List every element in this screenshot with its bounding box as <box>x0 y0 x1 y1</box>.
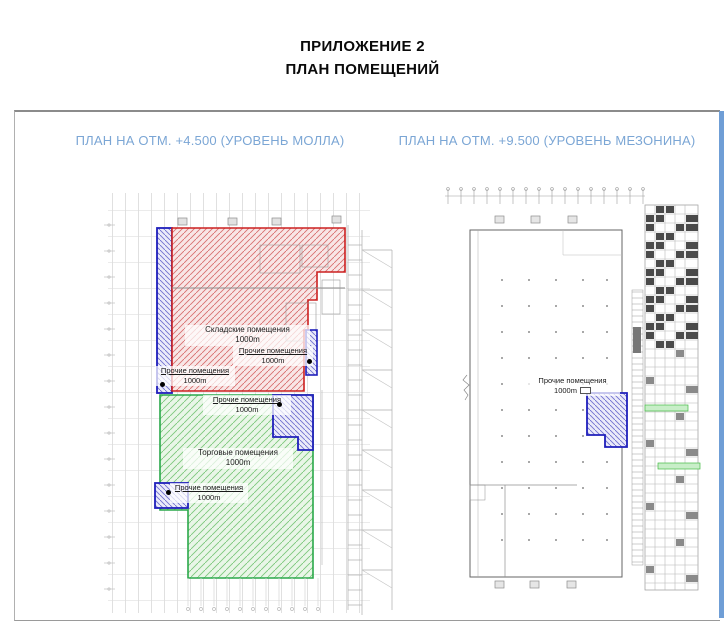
leader-dot-other-left <box>160 382 165 387</box>
legend-box-icon <box>580 387 591 394</box>
zone-label-other-left: Прочие помещения 1000m <box>155 366 235 386</box>
zone-label-mezz-other: Прочие помещения 1000m <box>525 376 620 396</box>
mezzanine-ladder-strip <box>632 290 643 565</box>
document-title-line2: ПЛАН ПОМЕЩЕНИЙ <box>0 59 725 82</box>
zone-label-retail: Торговые помещения 1000m <box>183 448 293 469</box>
mezzanine-plan-title: ПЛАН НА ОТМ. +9.500 (УРОВЕНЬ МЕЗОНИНА) <box>382 133 712 148</box>
document-title: ПРИЛОЖЕНИЕ 2 ПЛАН ПОМЕЩЕНИЙ <box>0 36 725 81</box>
mall-plan-title: ПЛАН НА ОТМ. +4.500 (УРОВЕНЬ МОЛЛА) <box>62 133 358 148</box>
zone-label-other-bottom-left: Прочие помещения 1000m <box>170 483 248 503</box>
frame-right-blue-bar <box>719 111 724 618</box>
zone-label-warehouse: Складские помещения 1000m <box>185 325 310 346</box>
mezzanine-plan-drawing <box>440 185 712 623</box>
mezzanine-top-ruler <box>445 188 645 204</box>
mezzanine-green-accents <box>645 405 700 469</box>
leader-dot-other-mid-right <box>307 359 312 364</box>
document-title-line1: ПРИЛОЖЕНИЕ 2 <box>0 36 725 59</box>
document-page: ПРИЛОЖЕНИЕ 2 ПЛАН ПОМЕЩЕНИЙ ПЛАН НА ОТМ.… <box>0 0 725 643</box>
leader-dot-other-green-top <box>277 402 282 407</box>
zone-label-other-mid-right: Прочие помещения 1000m <box>233 346 313 366</box>
mezzanine-right-rooms-block <box>645 205 698 590</box>
leader-dot-other-bottom-left <box>166 490 171 495</box>
